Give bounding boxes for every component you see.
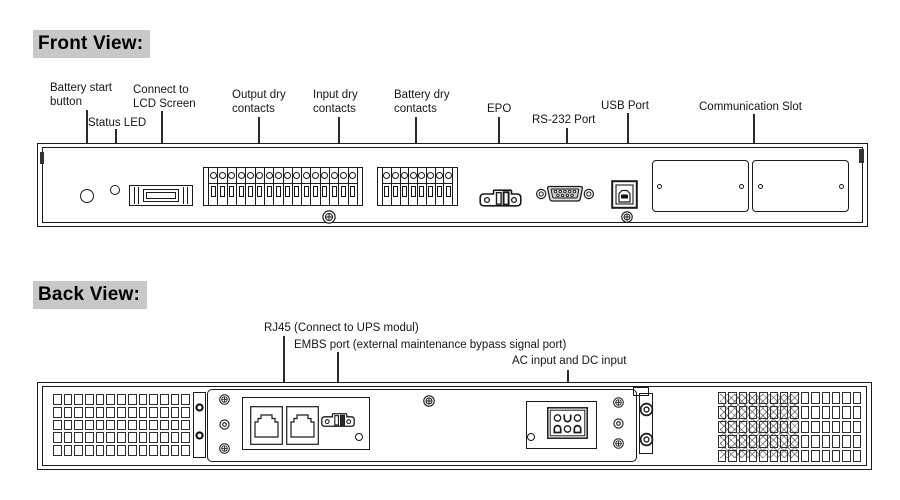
terminal bbox=[302, 168, 311, 205]
terminal-slot bbox=[446, 184, 451, 205]
terminal bbox=[321, 168, 330, 205]
output-input-dry-contact-block[interactable] bbox=[203, 167, 363, 206]
terminal-block-ear bbox=[452, 168, 457, 205]
battery-start-button-label: Battery start button bbox=[50, 81, 112, 109]
lcd-connector-socket bbox=[143, 189, 179, 202]
vent-cell bbox=[128, 420, 137, 431]
rj45-port-2[interactable] bbox=[286, 406, 319, 445]
terminal-screw-hole bbox=[436, 168, 444, 184]
vent-cell bbox=[53, 407, 62, 418]
terminal bbox=[265, 168, 274, 205]
vent-cell bbox=[139, 445, 148, 456]
terminal bbox=[274, 168, 283, 205]
terminal-circle bbox=[418, 172, 425, 179]
back-view-heading: Back View: bbox=[33, 281, 147, 309]
vent-cell bbox=[106, 445, 115, 456]
vent-cell bbox=[149, 407, 158, 418]
epo-label: EPO bbox=[487, 102, 511, 116]
terminal bbox=[228, 168, 237, 205]
terminal-screw-hole bbox=[228, 168, 236, 184]
vent-cell bbox=[96, 432, 105, 443]
ac-dc-input-connector[interactable] bbox=[547, 407, 588, 439]
vent-cell bbox=[106, 432, 115, 443]
vent-cell bbox=[128, 432, 137, 443]
terminal-square bbox=[276, 186, 281, 197]
terminal-square bbox=[229, 186, 234, 197]
terminal-square bbox=[304, 186, 309, 197]
standoff-icon bbox=[219, 419, 230, 430]
terminal bbox=[330, 168, 339, 205]
vent-cell bbox=[832, 435, 840, 447]
lcd-connector-socket-inner bbox=[146, 192, 176, 199]
terminal-screw-hole bbox=[246, 168, 254, 184]
terminal-screw-hole bbox=[383, 168, 391, 184]
vent-cell bbox=[74, 420, 83, 431]
terminal-screw-hole bbox=[256, 168, 264, 184]
terminal-circle bbox=[247, 172, 254, 179]
terminal-slot bbox=[419, 184, 424, 205]
terminal-circle bbox=[312, 172, 319, 179]
slot-screw-icon bbox=[739, 184, 744, 189]
vent-cell bbox=[832, 421, 840, 433]
terminal-screw-hole bbox=[274, 168, 282, 184]
rivet-icon bbox=[195, 431, 204, 440]
vent-cell bbox=[64, 407, 73, 418]
vent-cell bbox=[842, 406, 850, 418]
terminal bbox=[418, 168, 427, 205]
vent-cell bbox=[171, 420, 180, 431]
vent-cell bbox=[822, 435, 830, 447]
terminal-screw-hole bbox=[209, 168, 217, 184]
left-vent-grille bbox=[53, 394, 190, 456]
terminal-screw-hole bbox=[237, 168, 245, 184]
screw-icon bbox=[621, 211, 633, 223]
vent-cell bbox=[181, 407, 190, 418]
rs232-port[interactable] bbox=[536, 181, 594, 206]
terminal-slot bbox=[294, 184, 299, 205]
terminal-slot bbox=[322, 184, 327, 205]
vent-cell bbox=[53, 432, 62, 443]
vent-cell bbox=[181, 445, 190, 456]
terminal-square bbox=[402, 186, 407, 197]
terminal bbox=[427, 168, 436, 205]
terminal bbox=[284, 168, 293, 205]
terminal-screw-hole bbox=[218, 168, 226, 184]
vent-cell bbox=[160, 445, 169, 456]
terminal-slot bbox=[402, 184, 407, 205]
usb-port[interactable] bbox=[611, 180, 638, 209]
terminal-square bbox=[220, 186, 225, 197]
vent-cell bbox=[53, 394, 62, 405]
vent-cell bbox=[117, 445, 126, 456]
vent-cell bbox=[822, 392, 830, 404]
ac-dc-input-label: AC input and DC input bbox=[512, 354, 626, 368]
vent-cell bbox=[149, 445, 158, 456]
bracket-hole-icon bbox=[639, 402, 654, 417]
terminal-slot bbox=[276, 184, 281, 205]
terminal-square bbox=[341, 186, 346, 197]
vent-cell bbox=[811, 450, 819, 462]
lcd-cap-line bbox=[138, 187, 139, 204]
terminal bbox=[218, 168, 227, 205]
vent-cell bbox=[801, 450, 809, 462]
vent-cell bbox=[85, 432, 94, 443]
terminal-square bbox=[350, 186, 355, 197]
terminal-circle bbox=[293, 172, 300, 179]
vent-cell bbox=[106, 420, 115, 431]
terminal-circle bbox=[349, 172, 356, 179]
terminal-square bbox=[419, 186, 424, 197]
terminal-slot bbox=[229, 184, 234, 205]
terminal-circle bbox=[427, 172, 434, 179]
terminal-slot bbox=[304, 184, 309, 205]
terminal bbox=[409, 168, 418, 205]
ups-panel-diagram: Front View: Battery start button Status … bbox=[0, 0, 900, 500]
terminal bbox=[339, 168, 348, 205]
terminal-square bbox=[393, 186, 398, 197]
panel-hole bbox=[355, 433, 363, 441]
lcd-screen-connector[interactable] bbox=[129, 185, 193, 206]
screw-icon bbox=[423, 395, 435, 407]
vent-cell bbox=[853, 406, 861, 418]
front-right-mount-tab bbox=[859, 149, 864, 163]
terminal-slot bbox=[220, 184, 225, 205]
vent-cell bbox=[117, 407, 126, 418]
vent-cell bbox=[106, 394, 115, 405]
terminal-slot bbox=[285, 184, 290, 205]
vent-end-strip bbox=[193, 392, 206, 458]
front-left-mount-tab bbox=[40, 152, 44, 164]
terminal-slot bbox=[411, 184, 416, 205]
battery-dry-contacts-label: Battery dry contacts bbox=[394, 88, 450, 116]
vent-cell bbox=[139, 420, 148, 431]
embs-label: EMBS port (external maintenance bypass s… bbox=[294, 338, 566, 352]
terminal-screw-hole bbox=[293, 168, 301, 184]
epo-connector[interactable] bbox=[478, 188, 523, 208]
fan-blades-hatch bbox=[720, 394, 798, 458]
vent-cell bbox=[85, 394, 94, 405]
vent-cell bbox=[74, 432, 83, 443]
vent-cell bbox=[171, 445, 180, 456]
vent-cell bbox=[117, 432, 126, 443]
vent-cell bbox=[842, 421, 850, 433]
vent-cell bbox=[181, 432, 190, 443]
terminal-circle bbox=[392, 172, 399, 179]
vent-cell bbox=[128, 394, 137, 405]
terminal-square bbox=[257, 186, 262, 197]
vent-cell bbox=[64, 420, 73, 431]
terminal-screw-hole bbox=[444, 168, 452, 184]
communication-slot-label: Communication Slot bbox=[699, 100, 802, 114]
vent-cell bbox=[96, 407, 105, 418]
vent-cell bbox=[106, 407, 115, 418]
panel-hole bbox=[527, 433, 535, 441]
vent-cell bbox=[842, 435, 850, 447]
terminal-slot bbox=[313, 184, 318, 205]
terminal-circle bbox=[238, 172, 245, 179]
terminal-screw-hole bbox=[392, 168, 400, 184]
terminal-slot bbox=[211, 184, 216, 205]
terminal-square bbox=[285, 186, 290, 197]
vent-cell bbox=[853, 450, 861, 462]
terminal bbox=[209, 168, 218, 205]
communication-slot-1[interactable] bbox=[652, 160, 749, 212]
vent-cell bbox=[53, 445, 62, 456]
terminal-square bbox=[248, 186, 253, 197]
terminal-square bbox=[211, 186, 216, 197]
terminal-slot bbox=[257, 184, 262, 205]
terminal-cells bbox=[383, 168, 452, 205]
terminal-screw-hole bbox=[339, 168, 347, 184]
vent-cell bbox=[822, 421, 830, 433]
terminal-screw-hole bbox=[265, 168, 273, 184]
terminal-screw-hole bbox=[349, 168, 357, 184]
vent-cell bbox=[85, 445, 94, 456]
terminal bbox=[311, 168, 320, 205]
screw-icon bbox=[613, 397, 624, 408]
vent-cell bbox=[160, 394, 169, 405]
slot-screw-icon bbox=[839, 184, 844, 189]
terminal-circle bbox=[321, 172, 328, 179]
vent-cell bbox=[139, 394, 148, 405]
vent-cell bbox=[822, 450, 830, 462]
vent-cell bbox=[853, 392, 861, 404]
vent-cell bbox=[801, 392, 809, 404]
terminal-screw-hole bbox=[321, 168, 329, 184]
rj45-port-1[interactable] bbox=[250, 406, 283, 445]
embs-port[interactable] bbox=[320, 411, 356, 429]
vent-cell bbox=[96, 420, 105, 431]
vent-cell bbox=[139, 407, 148, 418]
terminal-square bbox=[332, 186, 337, 197]
terminal-circle bbox=[256, 172, 263, 179]
terminal-screw-hole bbox=[284, 168, 292, 184]
rivet-icon bbox=[195, 403, 204, 412]
right-vent-grille bbox=[718, 392, 861, 462]
terminal-circle bbox=[266, 172, 273, 179]
terminal-square bbox=[428, 186, 433, 197]
terminal bbox=[436, 168, 445, 205]
bracket-hole-icon bbox=[639, 432, 654, 447]
terminal-slot bbox=[267, 184, 272, 205]
vent-cell bbox=[128, 445, 137, 456]
vent-cell bbox=[811, 406, 819, 418]
terminal-circle bbox=[331, 172, 338, 179]
terminal bbox=[444, 168, 452, 205]
vent-cell bbox=[53, 420, 62, 431]
terminal-circle bbox=[340, 172, 347, 179]
terminal-square bbox=[446, 186, 451, 197]
terminal-slot bbox=[384, 184, 389, 205]
vent-cell bbox=[149, 432, 158, 443]
terminal-square bbox=[384, 186, 389, 197]
standoff-icon bbox=[613, 418, 624, 429]
vent-cell bbox=[160, 420, 169, 431]
vent-cell bbox=[74, 445, 83, 456]
terminal-square bbox=[267, 186, 272, 197]
terminal-square bbox=[411, 186, 416, 197]
vent-cell bbox=[96, 445, 105, 456]
vent-cell bbox=[64, 432, 73, 443]
usb-port-label: USB Port bbox=[601, 99, 649, 113]
terminal-slot bbox=[428, 184, 433, 205]
vent-cell bbox=[64, 445, 73, 456]
terminal-circle bbox=[303, 172, 310, 179]
terminal-slot bbox=[437, 184, 442, 205]
terminal-screw-hole bbox=[418, 168, 426, 184]
terminal-slot bbox=[332, 184, 337, 205]
terminal-square bbox=[239, 186, 244, 197]
terminal bbox=[392, 168, 401, 205]
status-led-label: Status LED bbox=[88, 116, 146, 130]
terminal-square bbox=[437, 186, 442, 197]
terminal-screw-hole bbox=[401, 168, 409, 184]
vent-cell bbox=[74, 407, 83, 418]
vent-cell bbox=[853, 421, 861, 433]
vent-cell bbox=[171, 407, 180, 418]
vent-cell bbox=[832, 392, 840, 404]
terminal-block-ear bbox=[357, 168, 362, 205]
terminal-circle bbox=[383, 172, 390, 179]
vent-cell bbox=[811, 392, 819, 404]
slot-screw-icon bbox=[758, 184, 763, 189]
terminal-slot bbox=[341, 184, 346, 205]
vent-cell bbox=[171, 432, 180, 443]
terminal-screw-hole bbox=[409, 168, 417, 184]
terminal-screw-hole bbox=[330, 168, 338, 184]
terminal-circle bbox=[275, 172, 282, 179]
terminal bbox=[383, 168, 392, 205]
terminal-slot bbox=[393, 184, 398, 205]
vent-cell bbox=[801, 406, 809, 418]
terminal-circle bbox=[445, 172, 452, 179]
vent-cell bbox=[853, 435, 861, 447]
terminal-screw-hole bbox=[302, 168, 310, 184]
communication-slot-2[interactable] bbox=[752, 160, 849, 212]
terminal-slot bbox=[248, 184, 253, 205]
terminal-circle bbox=[219, 172, 226, 179]
input-dry-contacts-label: Input dry contacts bbox=[313, 88, 358, 116]
vent-cell bbox=[822, 406, 830, 418]
terminal bbox=[293, 168, 302, 205]
terminal-circle bbox=[410, 172, 417, 179]
vent-cell bbox=[117, 420, 126, 431]
status-led bbox=[110, 185, 120, 195]
rj45-label: RJ45 (Connect to UPS modul) bbox=[264, 321, 419, 335]
battery-dry-contact-block[interactable] bbox=[377, 167, 458, 206]
terminal-circle bbox=[228, 172, 235, 179]
lcd-cap-line bbox=[134, 187, 135, 204]
screw-icon bbox=[219, 394, 230, 405]
vent-cell bbox=[149, 420, 158, 431]
terminal bbox=[349, 168, 357, 205]
screw-icon bbox=[322, 210, 336, 224]
terminal bbox=[256, 168, 265, 205]
vent-cell bbox=[96, 394, 105, 405]
terminal-square bbox=[313, 186, 318, 197]
vent-cell bbox=[832, 450, 840, 462]
screw-icon bbox=[613, 438, 624, 449]
rs232-port-label: RS-232 Port bbox=[532, 113, 595, 127]
vent-cell bbox=[832, 406, 840, 418]
slot-screw-icon bbox=[657, 184, 662, 189]
lcd-cap-line bbox=[183, 187, 184, 204]
terminal bbox=[246, 168, 255, 205]
vent-cell bbox=[160, 407, 169, 418]
vent-cell bbox=[181, 420, 190, 431]
vent-cell bbox=[149, 394, 158, 405]
lcd-screen-label: Connect to LCD Screen bbox=[133, 83, 196, 111]
terminal-cells bbox=[209, 168, 357, 205]
terminal-circle bbox=[210, 172, 217, 179]
terminal-circle bbox=[436, 172, 443, 179]
terminal-slot bbox=[350, 184, 355, 205]
lcd-cap-line bbox=[187, 187, 188, 204]
vent-cell bbox=[139, 432, 148, 443]
front-view-heading: Front View: bbox=[33, 30, 150, 58]
output-dry-contacts-label: Output dry contacts bbox=[232, 88, 286, 116]
vent-cell bbox=[811, 435, 819, 447]
terminal-circle bbox=[284, 172, 291, 179]
screw-icon bbox=[219, 443, 230, 454]
vent-cell bbox=[117, 394, 126, 405]
vent-cell bbox=[64, 394, 73, 405]
vent-cell bbox=[171, 394, 180, 405]
vent-cell bbox=[801, 435, 809, 447]
vent-cell bbox=[85, 407, 94, 418]
vent-cell bbox=[128, 407, 137, 418]
vent-cell bbox=[842, 392, 850, 404]
vent-cell bbox=[801, 421, 809, 433]
terminal-square bbox=[294, 186, 299, 197]
vent-cell bbox=[74, 394, 83, 405]
vent-cell bbox=[842, 450, 850, 462]
vent-cell bbox=[160, 432, 169, 443]
vent-cell bbox=[85, 420, 94, 431]
battery-start-button[interactable] bbox=[80, 189, 94, 203]
terminal bbox=[237, 168, 246, 205]
terminal-screw-hole bbox=[427, 168, 435, 184]
terminal-slot bbox=[239, 184, 244, 205]
terminal-square bbox=[322, 186, 327, 197]
terminal-circle bbox=[401, 172, 408, 179]
terminal bbox=[401, 168, 410, 205]
vent-cell bbox=[811, 421, 819, 433]
vent-cell bbox=[181, 394, 190, 405]
terminal-screw-hole bbox=[311, 168, 319, 184]
